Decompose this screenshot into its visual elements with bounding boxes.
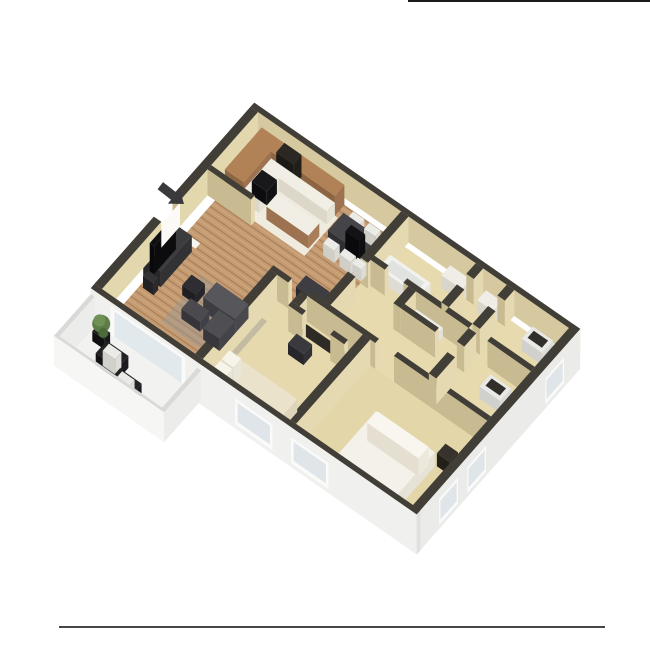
bath-south-wall-a-face-se — [385, 265, 389, 295]
balcony-plant-foliage-3 — [98, 328, 108, 338]
closet-west-wall-face-sw — [393, 303, 401, 334]
wing-wall-a-face-sw — [497, 295, 505, 326]
kitchen-entry-wall-face-se — [251, 195, 255, 225]
wing-wall-d-face-sw — [429, 373, 437, 404]
bottom-divider-line — [59, 626, 605, 628]
closet-south-wall-face-se — [435, 328, 439, 358]
entry-arrow-icon — [158, 182, 184, 204]
tv-screen-face-sw — [150, 243, 154, 274]
closet-front-wall-a-face-se — [302, 311, 306, 341]
floorplan-3d-render — [0, 0, 650, 650]
bath-east-wall-a-face-sw — [466, 274, 474, 305]
balcony-rail-se-face-sw — [160, 410, 164, 443]
balcony-plant-foliage-2 — [94, 314, 106, 326]
floorplan-page — [0, 0, 650, 650]
bedroom-north-wall-b-face-se — [375, 339, 379, 369]
floorplan-root — [54, 103, 580, 555]
sw-exterior-wall-face-se — [417, 510, 421, 554]
wing-wall-c-face-sw — [457, 341, 464, 372]
